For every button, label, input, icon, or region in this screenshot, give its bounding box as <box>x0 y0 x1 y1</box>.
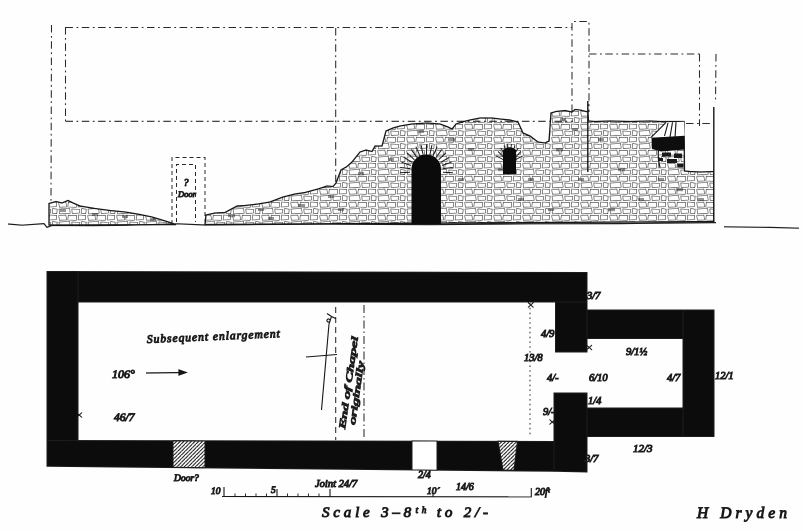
svg-text:1/4: 1/4 <box>588 396 602 407</box>
svg-text:4/9: 4/9 <box>541 329 555 340</box>
svg-text:3/7: 3/7 <box>584 454 599 465</box>
svg-text:9/-: 9/- <box>543 407 555 418</box>
svg-text:2/4: 2/4 <box>418 470 431 481</box>
svg-text:4/-: 4/- <box>547 373 559 384</box>
svg-text:4/7: 4/7 <box>667 373 681 384</box>
svg-text:Subsequent enlargement: Subsequent enlargement <box>147 328 281 346</box>
svg-text:5: 5 <box>271 486 276 496</box>
svg-text:3/7: 3/7 <box>586 291 601 302</box>
svg-text:13/8: 13/8 <box>524 353 543 364</box>
svg-text:H Dryden: H Dryden <box>696 505 787 522</box>
svg-text:Door?: Door? <box>173 474 199 484</box>
svg-text:46/7: 46/7 <box>114 412 136 424</box>
svg-text:20fᵗ: 20fᵗ <box>535 487 551 498</box>
svg-text:Joint 24/7: Joint 24/7 <box>315 479 358 490</box>
svg-text:12/1: 12/1 <box>715 371 734 382</box>
svg-text:106°: 106° <box>112 367 135 381</box>
svg-text:12/3: 12/3 <box>633 443 653 455</box>
svg-text:9/1½: 9/1½ <box>626 347 647 358</box>
svg-text:10´: 10´ <box>427 486 441 497</box>
svg-text:Door: Door <box>177 189 197 199</box>
svg-text:?: ? <box>184 178 189 189</box>
svg-text:6/10: 6/10 <box>589 373 608 384</box>
svg-text:Scale 3–8ᵗʰ to 2/-: Scale 3–8ᵗʰ to 2/- <box>322 505 488 521</box>
svg-text:14/6: 14/6 <box>456 482 474 493</box>
svg-text:10: 10 <box>211 487 221 497</box>
